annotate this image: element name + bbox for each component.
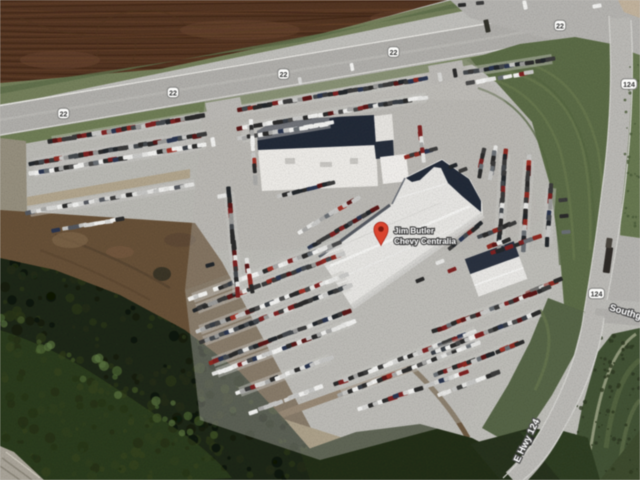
svg-text:124: 124 <box>591 291 603 298</box>
svg-text:22: 22 <box>556 23 564 30</box>
svg-text:Jim Butler: Jim Butler <box>394 227 435 236</box>
svg-text:22: 22 <box>390 50 398 57</box>
svg-text:22: 22 <box>280 72 288 79</box>
svg-text:Chevy Centralia: Chevy Centralia <box>394 237 456 246</box>
svg-text:124: 124 <box>623 82 635 89</box>
svg-text:22: 22 <box>169 90 177 97</box>
svg-text:22: 22 <box>60 111 68 118</box>
